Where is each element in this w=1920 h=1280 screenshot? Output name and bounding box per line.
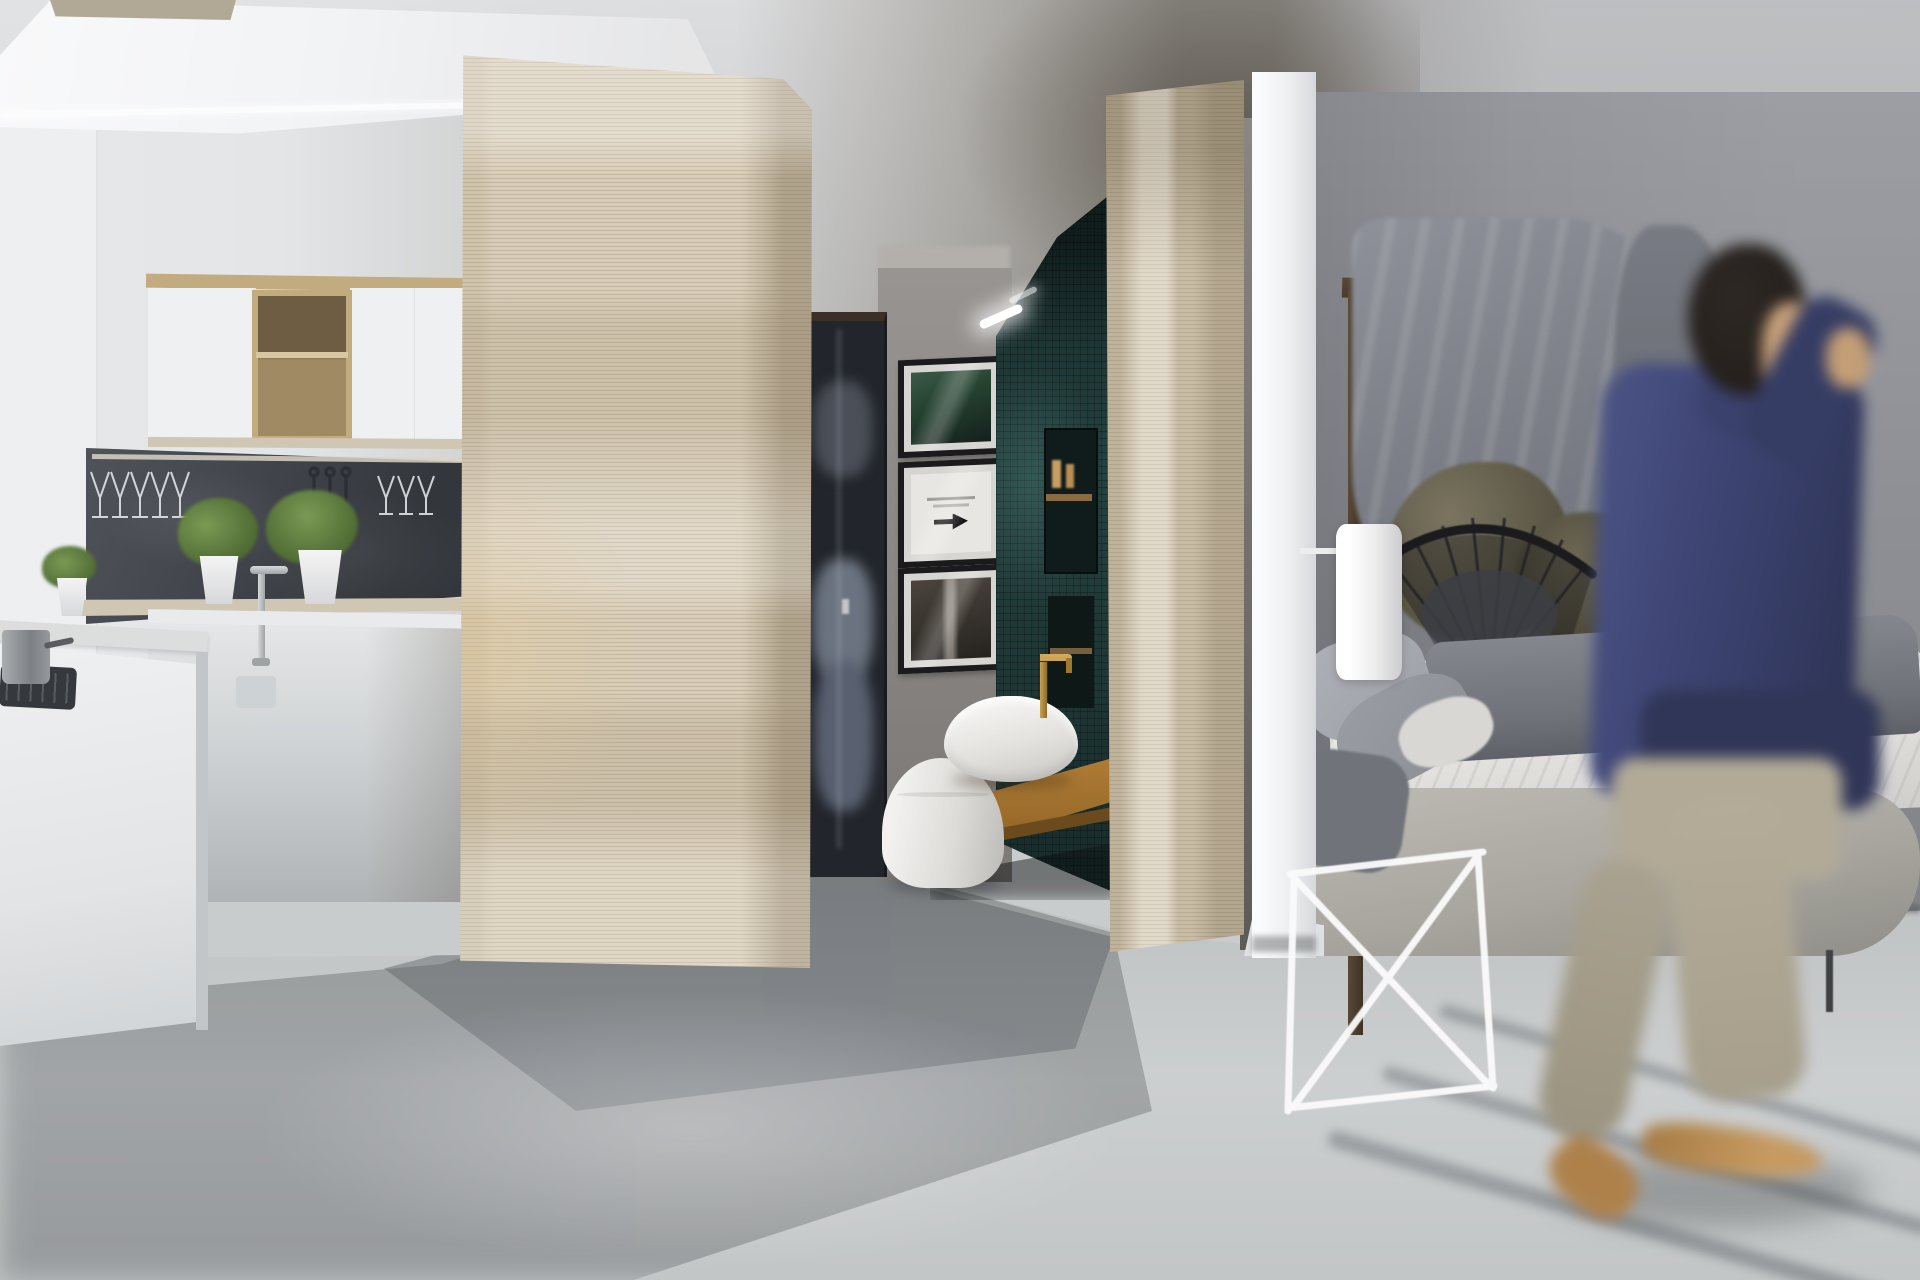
mirror-reflection-bedding — [815, 661, 873, 811]
walking-person — [1520, 210, 1920, 1250]
brass-faucet-stem — [1040, 662, 1047, 718]
mirror-door — [810, 312, 887, 877]
artwork-text-line — [927, 495, 975, 500]
travertine-partition-2 — [1106, 80, 1244, 952]
open-shelf-board — [256, 352, 348, 358]
framed-print-bottom — [898, 564, 1004, 675]
cooking-pot — [2, 630, 50, 684]
artwork-landscape — [911, 369, 991, 444]
vessel-sink — [944, 696, 1078, 782]
studio-apartment-render — [0, 0, 1920, 1280]
person-shoe — [1538, 1124, 1650, 1231]
bottle — [1052, 460, 1061, 488]
artwork-arrow-typography — [911, 471, 991, 554]
kitchen-faucet-base — [252, 658, 270, 666]
person-front-leg — [1532, 854, 1676, 1146]
framed-print-middle — [898, 458, 1004, 569]
white-column — [1252, 72, 1316, 958]
mirror-highlight — [836, 329, 842, 849]
island-side — [196, 652, 208, 1030]
person-shoe — [1640, 1117, 1824, 1185]
kitchen-faucet — [250, 566, 288, 574]
framed-print-top — [898, 356, 1004, 459]
travertine-partition-1 — [458, 50, 812, 968]
glass-cup — [236, 676, 276, 708]
brass-faucet-spout — [1066, 658, 1072, 673]
tile-niche-upper — [1044, 428, 1098, 574]
artwork-text-line — [933, 503, 968, 508]
cabinet-door-left — [148, 288, 256, 438]
bottle — [1066, 464, 1074, 488]
artwork-dark — [911, 577, 991, 660]
door-handle — [842, 599, 849, 614]
wire-bench — [1278, 836, 1503, 1136]
niche-shelf — [1046, 494, 1092, 501]
arrow-icon — [934, 513, 968, 530]
mirror-reflection — [814, 381, 872, 477]
open-shelf-interior — [258, 296, 346, 436]
wall-sconce — [1336, 524, 1402, 680]
person-hand-with-phone — [1826, 328, 1870, 388]
